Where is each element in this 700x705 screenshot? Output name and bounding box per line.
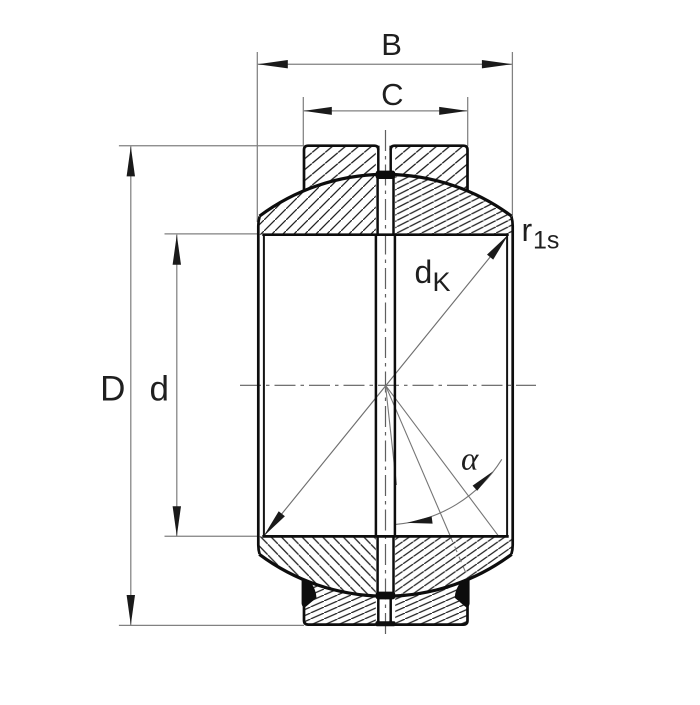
svg-text:K: K xyxy=(433,267,451,297)
svg-text:α: α xyxy=(461,442,479,478)
svg-text:d: d xyxy=(149,369,168,408)
svg-text:B: B xyxy=(381,27,402,62)
svg-text:1s: 1s xyxy=(533,227,559,255)
svg-text:d: d xyxy=(415,254,433,290)
svg-text:r: r xyxy=(522,212,533,248)
svg-text:C: C xyxy=(381,77,403,112)
svg-text:D: D xyxy=(100,369,125,408)
